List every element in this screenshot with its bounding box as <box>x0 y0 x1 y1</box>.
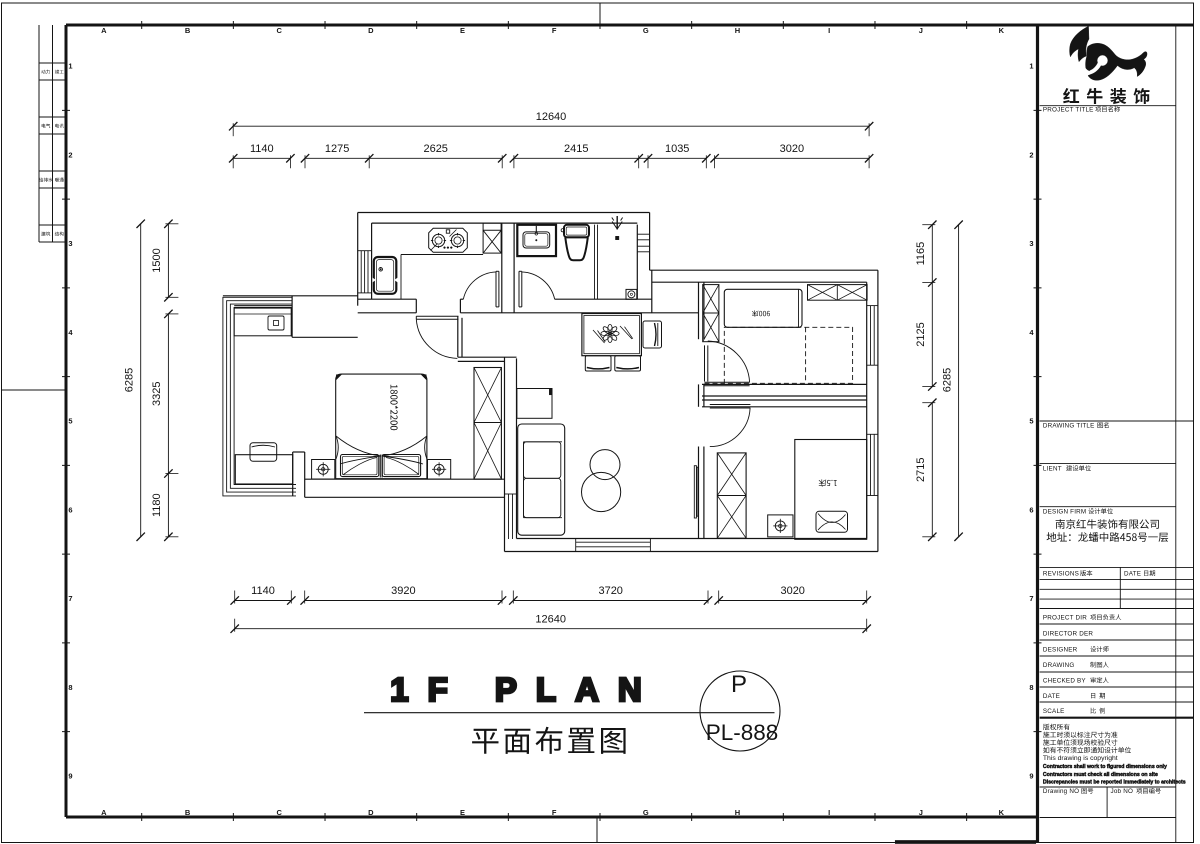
svg-text:3325: 3325 <box>151 381 163 405</box>
svg-text:3020: 3020 <box>780 585 804 597</box>
svg-text:Contractors must check all dim: Contractors must check all dimensions on… <box>1043 772 1158 778</box>
svg-text:DIRECTOR DER: DIRECTOR DER <box>1043 631 1093 638</box>
svg-text:PL-888: PL-888 <box>706 720 779 745</box>
svg-text:A: A <box>101 26 107 35</box>
svg-text:C: C <box>276 26 282 35</box>
svg-text:2: 2 <box>68 150 72 159</box>
svg-text:7: 7 <box>1029 594 1033 603</box>
svg-text:DRAWING TITLE: DRAWING TITLE <box>1043 423 1095 430</box>
svg-text:B: B <box>185 26 191 35</box>
svg-text:A: A <box>101 808 107 817</box>
svg-text:5: 5 <box>1029 417 1033 426</box>
svg-text:F: F <box>552 26 557 35</box>
svg-text:DATE: DATE <box>1124 571 1141 578</box>
svg-text:2415: 2415 <box>564 143 588 155</box>
svg-text:H: H <box>735 26 740 35</box>
svg-text:G: G <box>643 808 649 817</box>
svg-text:3920: 3920 <box>391 585 415 597</box>
svg-text:I: I <box>828 808 830 817</box>
svg-text:LIENT: LIENT <box>1043 466 1062 473</box>
svg-text:K: K <box>999 26 1005 35</box>
svg-text:Drawing NO: Drawing NO <box>1043 788 1079 795</box>
svg-text:I: I <box>828 26 830 35</box>
svg-text:DESIGNER: DESIGNER <box>1043 647 1078 654</box>
svg-text:This drawing is copyright: This drawing is copyright <box>1043 755 1118 762</box>
svg-text:Contractors shall work to figu: Contractors shall work to figured dimens… <box>1043 764 1167 770</box>
svg-text:1180: 1180 <box>151 493 163 517</box>
svg-text:J: J <box>919 26 923 35</box>
svg-text:REVISIONS: REVISIONS <box>1043 571 1079 578</box>
svg-text:1035: 1035 <box>665 143 689 155</box>
svg-text:D: D <box>368 26 374 35</box>
svg-text:6285: 6285 <box>124 368 136 392</box>
svg-text:E: E <box>460 808 465 817</box>
svg-text:3: 3 <box>68 239 72 248</box>
svg-text:8: 8 <box>68 683 72 692</box>
svg-text:H: H <box>735 808 740 817</box>
svg-text:Job NO: Job NO <box>1111 788 1134 795</box>
svg-text:6: 6 <box>68 505 72 514</box>
svg-text:1165: 1165 <box>915 242 927 266</box>
svg-text:1: 1 <box>1029 62 1033 71</box>
svg-text:PROJECT DIR: PROJECT DIR <box>1043 615 1087 622</box>
svg-text:J: J <box>919 808 923 817</box>
svg-text:6285: 6285 <box>942 368 954 392</box>
svg-text:9: 9 <box>68 772 72 781</box>
svg-text:1F PLAN: 1F PLAN <box>390 671 661 708</box>
svg-text:DATE: DATE <box>1043 693 1060 700</box>
svg-text:9: 9 <box>1029 772 1033 781</box>
svg-text:1275: 1275 <box>325 143 349 155</box>
svg-text:3: 3 <box>1029 239 1033 248</box>
svg-text:12640: 12640 <box>536 111 567 123</box>
svg-text:1500: 1500 <box>151 248 163 272</box>
svg-text:B: B <box>185 808 191 817</box>
svg-text:3720: 3720 <box>598 585 622 597</box>
svg-text:E: E <box>460 26 465 35</box>
svg-text:SCALE: SCALE <box>1043 708 1065 715</box>
svg-text:5: 5 <box>68 417 72 426</box>
svg-text:P: P <box>731 671 747 698</box>
svg-text:1140: 1140 <box>250 143 274 155</box>
svg-text:8: 8 <box>1029 683 1033 692</box>
svg-text:F: F <box>552 808 557 817</box>
svg-text:C: C <box>276 808 282 817</box>
svg-text:PROJECT TITLE: PROJECT TITLE <box>1043 107 1094 114</box>
svg-text:D: D <box>368 808 374 817</box>
svg-text:CHECKED BY: CHECKED BY <box>1043 678 1087 685</box>
svg-text:2715: 2715 <box>915 457 927 481</box>
svg-text:12640: 12640 <box>535 614 566 626</box>
svg-text:2625: 2625 <box>423 143 447 155</box>
svg-text:1140: 1140 <box>251 585 275 597</box>
svg-text:6: 6 <box>1029 505 1033 514</box>
svg-text:7: 7 <box>68 594 72 603</box>
svg-text:DRAWING: DRAWING <box>1043 662 1075 669</box>
svg-text:K: K <box>999 808 1005 817</box>
svg-text:G: G <box>643 26 649 35</box>
svg-text:1: 1 <box>68 62 72 71</box>
svg-text:DESIGN FIRM: DESIGN FIRM <box>1043 509 1086 516</box>
svg-text:2125: 2125 <box>915 322 927 346</box>
svg-text:3020: 3020 <box>780 143 804 155</box>
svg-text:Discrepancies must be reported: Discrepancies must be reported immediate… <box>1043 780 1186 786</box>
svg-text:2: 2 <box>1029 150 1033 159</box>
